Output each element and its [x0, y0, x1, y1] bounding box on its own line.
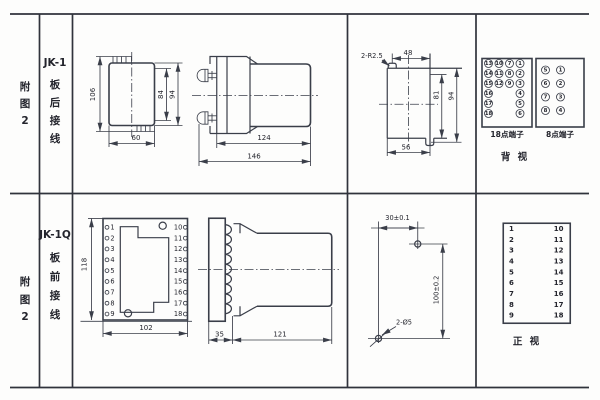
dim-label-top-width: 48 [404, 49, 413, 57]
terminal-number: 13 [174, 256, 182, 264]
dim-label-inner-height: 84 [157, 90, 165, 99]
terminal-dot [183, 247, 187, 251]
mounting-screw [197, 112, 216, 124]
terminal-number: 14 [174, 267, 182, 275]
dim-label-outer-height: 94 [169, 90, 177, 99]
terminal-number: 7 [508, 61, 512, 67]
model-label-char: 线 [50, 308, 61, 321]
terminal-dot [105, 280, 109, 284]
terminal-dot [183, 312, 187, 316]
terminal-number: 17 [554, 301, 564, 309]
terminal-number: 2 [559, 81, 563, 87]
terminal-number: 1 [509, 225, 514, 233]
row2-figure-label: 附 图 2 [20, 275, 31, 323]
terminal-number: 1 [518, 61, 522, 67]
relay-dimension-figure-page: 附 图 2 JK-1 板 后 接 线 106 84 94 60 [0, 0, 600, 400]
terminal-dot [105, 290, 109, 294]
terminal-number: 5 [110, 267, 114, 275]
side-view-front-wiring: 35 121 [198, 218, 339, 344]
terminal-number: 3 [518, 81, 522, 87]
terminal-dot [105, 312, 109, 316]
terminal-number: 18 [485, 111, 493, 117]
terminal-number: 5 [509, 268, 514, 276]
terminal-dot [183, 225, 187, 229]
terminal-block-18pt-label: 18点端子 [490, 129, 524, 139]
terminal-block-8pt-label: 8点端子 [546, 129, 574, 139]
terminal-number: 3 [110, 245, 114, 253]
terminal-number: 10 [495, 61, 503, 67]
terminal-number: 11 [495, 71, 503, 77]
terminal-number: 15 [174, 278, 182, 286]
terminal-dot [105, 258, 109, 262]
terminal-dot [183, 280, 187, 284]
back-view-label: 背 视 [501, 151, 529, 163]
terminal-number: 3 [559, 94, 563, 100]
terminal-dot [105, 301, 109, 305]
terminal-dot [105, 247, 109, 251]
terminal-block-8pt: 51627384 [542, 66, 565, 115]
dim-label-flange-depth: 35 [215, 331, 224, 339]
terminal-number: 4 [559, 108, 563, 114]
terminal-number: 1 [110, 224, 114, 232]
technical-drawing-canvas: 附 图 2 JK-1 板 后 接 线 106 84 94 60 [0, 0, 600, 400]
terminal-dot [183, 269, 187, 273]
rear-case-view: 106 84 94 60 [89, 52, 183, 147]
terminal-number: 17 [174, 299, 182, 307]
model-label-char: 前 [50, 270, 61, 283]
terminal-dot [105, 225, 109, 229]
drill-template-view: 30±0.1 100±0.2 2-Ø5 [368, 214, 450, 347]
figure-label-char: 图 [20, 98, 31, 110]
dim-label-hole-spacing-v: 100±0.2 [433, 276, 441, 305]
dim-label-holes: 2-Ø5 [396, 319, 412, 327]
terminal-number: 8 [110, 299, 114, 307]
terminal-dot [183, 290, 187, 294]
terminal-number: 17 [485, 101, 493, 107]
terminal-number: 6 [509, 279, 514, 287]
side-view-rear-wiring: 124 146 [192, 57, 318, 167]
terminal-number: 5 [544, 67, 548, 73]
terminal-number: 13 [485, 61, 493, 67]
mounting-screw [197, 69, 216, 81]
terminal-number: 9 [110, 310, 114, 318]
terminal-number: 6 [110, 278, 114, 286]
figure-label-char: 2 [21, 311, 28, 323]
row2-model-label: JK-1Q 板 前 接 线 [38, 229, 71, 321]
terminal-number: 16 [554, 290, 564, 298]
terminal-number: 18 [554, 312, 564, 320]
terminal-front-view: 123456789101112131415161718 正 视 [503, 223, 570, 347]
terminal-number: 4 [110, 256, 114, 264]
terminal-block-18pt: 131071141182151293164175186 [485, 60, 525, 118]
model-label-char: 线 [50, 132, 61, 145]
terminal-number: 9 [508, 81, 512, 87]
terminal-number: 2 [509, 236, 514, 244]
dim-label-total-length: 146 [247, 153, 261, 161]
model-label-char: 板 [50, 251, 61, 264]
dim-label-corner-radius: 2-R2.5 [361, 52, 383, 60]
terminal-number: 12 [495, 81, 503, 87]
terminal-number: 12 [554, 247, 564, 255]
terminal-number: 5 [518, 101, 522, 107]
terminal-number: 11 [174, 234, 182, 242]
terminal-number: 8 [508, 71, 512, 77]
terminal-number: 2 [518, 71, 522, 77]
row1-model-label: JK-1 板 后 接 线 [43, 57, 67, 145]
terminal-number: 8 [509, 301, 514, 309]
panel-cutout-view: 2-R2.5 48 81 94 56 [361, 49, 462, 156]
figure-label-char: 2 [21, 115, 28, 127]
model-label-char: 接 [50, 289, 61, 302]
terminal-number: 18 [174, 310, 182, 318]
terminal-number: 7 [509, 290, 514, 298]
terminal-number: 11 [554, 236, 564, 244]
terminal-number: 4 [509, 258, 514, 266]
terminal-number: 10 [174, 224, 182, 232]
terminal-dot [183, 301, 187, 305]
terminal-number: 16 [174, 289, 182, 297]
front-plate-view: 123456789101112131415161718 118 102 [81, 219, 193, 338]
mounting-hole [159, 222, 166, 229]
dim-label-width: 60 [132, 134, 141, 142]
terminal-bumps [225, 225, 231, 314]
terminal-dot [105, 269, 109, 273]
terminal-number: 13 [554, 258, 564, 266]
terminal-number: 4 [518, 91, 522, 97]
terminal-number: 1 [559, 67, 563, 73]
figure-label-char: 附 [20, 80, 31, 93]
terminal-number: 7 [110, 289, 114, 297]
terminal-number: 10 [554, 225, 564, 233]
terminal-number: 14 [554, 268, 564, 276]
terminal-dot [183, 258, 187, 262]
terminal-number: 16 [485, 91, 493, 97]
dim-label-body-length: 124 [257, 134, 271, 142]
terminal-dot [105, 236, 109, 240]
terminal-number: 12 [174, 245, 182, 253]
dim-label-body-length: 121 [273, 331, 286, 339]
model-name: JK-1Q [38, 229, 71, 241]
mounting-hole [124, 310, 131, 317]
dim-label-width: 102 [139, 324, 152, 332]
terminal-number: 8 [544, 108, 548, 114]
terminal-number: 15 [554, 279, 564, 287]
terminal-number: 7 [544, 94, 548, 100]
front-view-label: 正 视 [513, 336, 541, 348]
terminal-number: 15 [485, 81, 493, 87]
terminal-dot [183, 236, 187, 240]
terminal-number: 14 [485, 71, 493, 77]
dim-label-hole-spacing-h: 30±0.1 [385, 214, 409, 222]
terminal-number: 6 [544, 81, 548, 87]
dim-label-height: 118 [81, 258, 89, 271]
model-name: JK-1 [43, 57, 67, 69]
terminal-back-view: 131071141182151293164175186 51627384 18点… [482, 59, 584, 164]
dim-label-height: 106 [89, 87, 97, 101]
terminal-number: 6 [518, 111, 522, 117]
row1-figure-label: 附 图 2 [20, 80, 31, 127]
model-label-char: 板 [50, 78, 61, 91]
model-label-char: 后 [50, 96, 61, 109]
model-label-char: 接 [50, 114, 61, 127]
terminal-number: 9 [509, 312, 514, 320]
dim-label-inner-height: 81 [433, 91, 441, 100]
terminal-number: 2 [110, 234, 114, 242]
figure-label-char: 附 [20, 275, 31, 288]
dim-label-bottom-width: 56 [402, 144, 411, 152]
dim-label-outer-height: 94 [448, 91, 456, 100]
figure-label-char: 图 [20, 294, 31, 306]
terminal-number-table: 123456789101112131415161718 [509, 225, 564, 320]
terminal-number: 3 [509, 247, 514, 255]
